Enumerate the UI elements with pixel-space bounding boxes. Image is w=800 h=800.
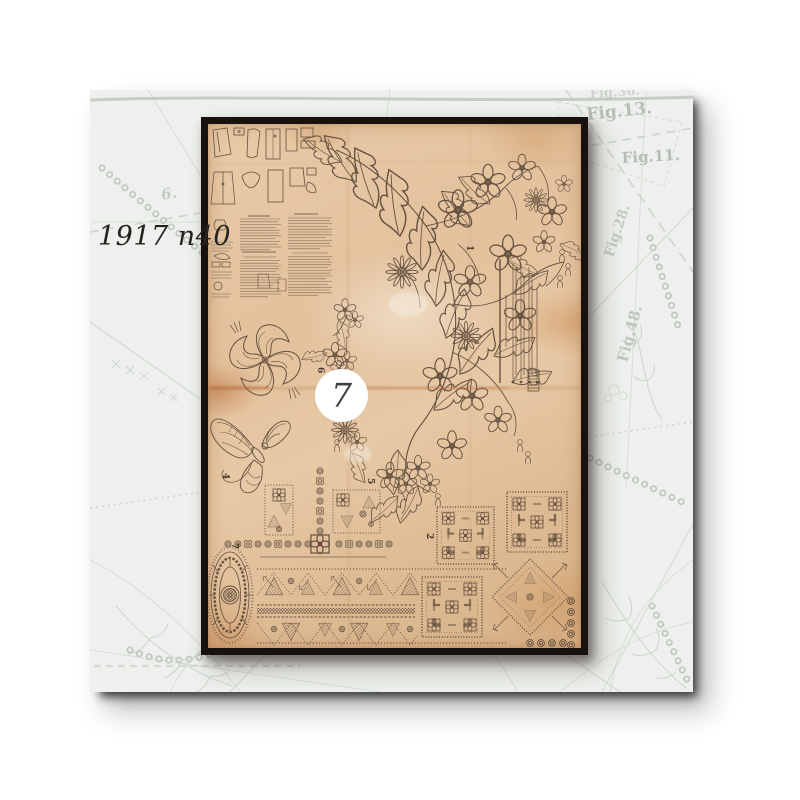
butterfly-motif (211, 419, 291, 493)
pattern-sheet-art: 1 2 4 5 6 7 (208, 124, 581, 648)
oval-lace-medallion (208, 547, 253, 643)
piece-number-5: 5 (365, 478, 375, 484)
piece-number-2: 2 (424, 533, 434, 539)
dot-circle-cluster (527, 598, 575, 648)
piece-number-4: 4 (220, 473, 230, 479)
fig-label-11: Fig.11. (621, 146, 680, 167)
piece-number-6: 6 (315, 367, 325, 373)
year-caption: 1917 n40 (98, 221, 231, 252)
vintage-pattern-sheet: 1 2 4 5 6 7 (201, 117, 588, 655)
piece-number-1: 1 (464, 245, 474, 251)
fig-label-6: 6. (160, 183, 179, 203)
corner-diamond-motif (492, 559, 568, 635)
fig-label-13: Fig.13. (585, 98, 653, 125)
sheet-number-badge: 7 (315, 369, 368, 422)
fig-label-28: Fig.28. (602, 203, 634, 260)
fold-creases (210, 126, 579, 646)
product-photo: Fig.36. Fig.13. Fig.11. Fig.28. Fig.48. … (0, 0, 800, 800)
garment-piece-diagrams (211, 128, 316, 204)
piece-number-7: 7 (229, 543, 239, 549)
